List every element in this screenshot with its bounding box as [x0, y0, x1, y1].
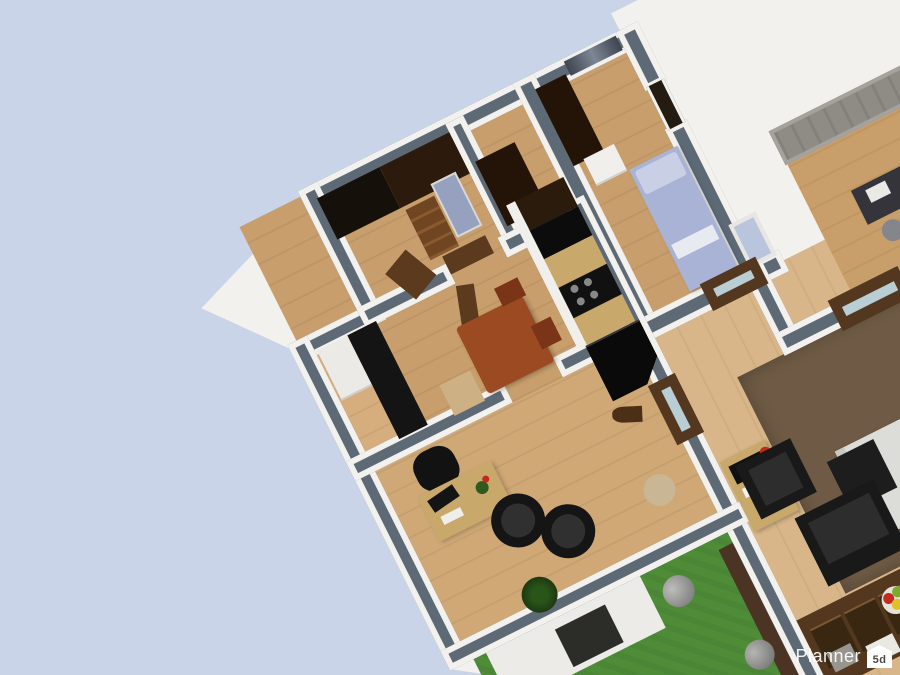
watermark[interactable]: Planner 5d: [795, 645, 892, 668]
floorplan-canvas: Planner 5d: [0, 0, 900, 675]
watermark-brand-text: Planner: [795, 646, 861, 667]
door-leaf-small: [612, 406, 643, 423]
logo-5d-text: 5d: [873, 654, 887, 666]
planner5d-logo-icon: 5d: [867, 645, 892, 668]
